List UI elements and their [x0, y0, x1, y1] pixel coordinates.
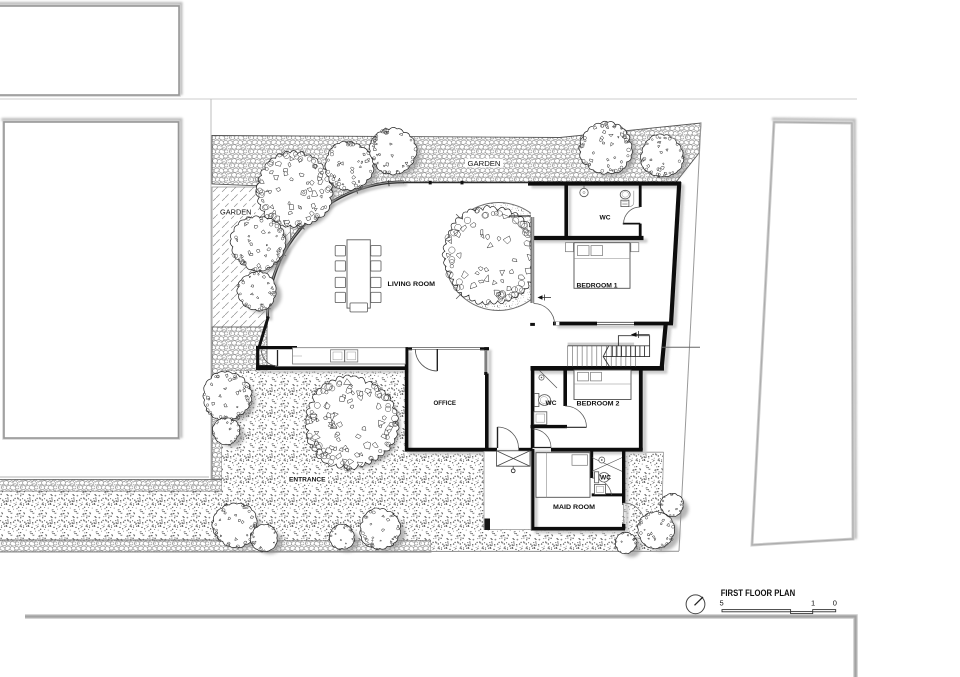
svg-text:LIVING ROOM: LIVING ROOM [388, 281, 436, 288]
svg-text:WC: WC [600, 475, 611, 482]
svg-text:GARDEN: GARDEN [220, 207, 252, 216]
svg-text:WC: WC [600, 215, 611, 222]
svg-text:MAID ROOM: MAID ROOM [553, 504, 595, 511]
svg-text:0: 0 [833, 599, 837, 608]
svg-text:GARDEN: GARDEN [468, 159, 501, 168]
svg-text:ENTRANCE: ENTRANCE [289, 477, 326, 484]
svg-text:BEDROOM 1: BEDROOM 1 [577, 283, 618, 290]
svg-text:WC: WC [546, 400, 557, 407]
svg-text:1: 1 [811, 599, 815, 608]
svg-text:FIRST FLOOR PLAN: FIRST FLOOR PLAN [721, 588, 796, 598]
svg-text:5: 5 [720, 599, 724, 608]
svg-text:OFFICE: OFFICE [434, 400, 457, 407]
svg-text:BEDROOM 2: BEDROOM 2 [577, 401, 620, 408]
